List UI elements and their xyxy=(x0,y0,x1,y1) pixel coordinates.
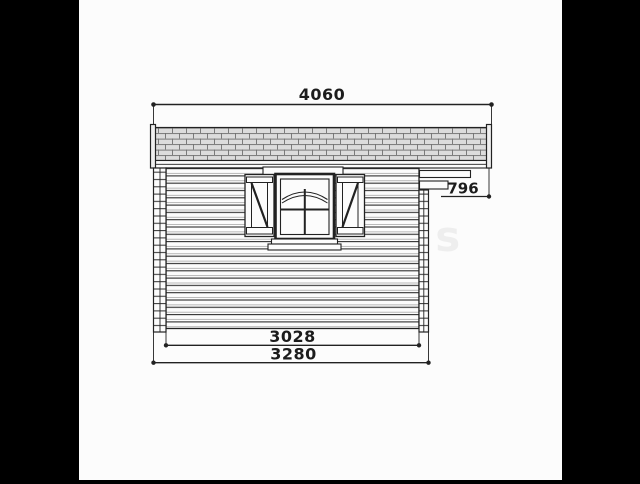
window-frame xyxy=(276,174,335,239)
dimension-endpoint xyxy=(151,361,155,365)
letterbox-right-bar xyxy=(562,0,640,480)
shutter-left-bottom-batten xyxy=(247,228,273,235)
dimension-endpoint xyxy=(417,343,421,347)
barge-board-left xyxy=(151,125,156,169)
inner-width-label: 3028 xyxy=(269,327,316,346)
dimension-endpoint xyxy=(164,343,168,347)
roof xyxy=(151,125,492,169)
shutter-right-top-batten xyxy=(338,177,364,183)
letterbox-left-bar xyxy=(0,0,79,480)
overhang-dimension-label: 796 xyxy=(447,180,478,198)
window-sill-upper xyxy=(272,239,338,244)
shutter-right-bottom-batten xyxy=(338,228,364,235)
shutter-left xyxy=(245,175,274,237)
barge-board-right xyxy=(487,125,492,169)
shutter-right xyxy=(336,175,365,237)
purlin-end-short xyxy=(420,181,449,189)
elevation-drawing: blaudetells 4060 796 xyxy=(0,0,640,480)
dimension-endpoint xyxy=(426,361,430,365)
screenshot-stage: blaudetells 4060 796 xyxy=(0,0,640,480)
dimension-endpoint xyxy=(487,194,491,198)
roof-shingle-band xyxy=(155,128,487,161)
outer-width-label: 3280 xyxy=(270,345,317,364)
window-sill-lower xyxy=(268,244,341,250)
shutter-left-top-batten xyxy=(247,177,273,183)
purlin-end-long xyxy=(420,171,471,178)
top-dimension-label: 4060 xyxy=(299,85,346,104)
